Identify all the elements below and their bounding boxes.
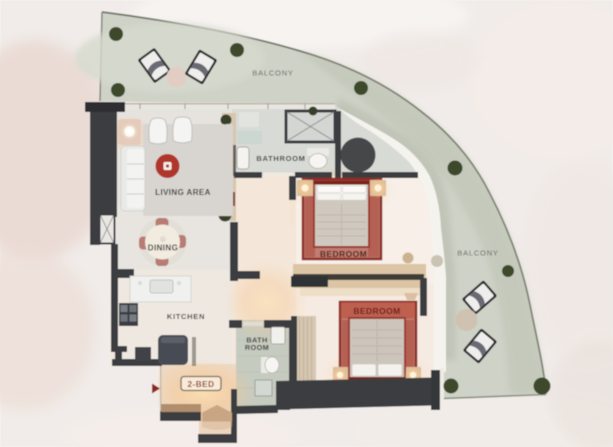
svg-text:2-BED: 2-BED bbox=[187, 380, 214, 389]
svg-text:BEDROOM: BEDROOM bbox=[320, 249, 367, 259]
svg-text:LIVING AREA: LIVING AREA bbox=[155, 188, 211, 197]
svg-text:DINING: DINING bbox=[148, 244, 178, 253]
svg-text:BALCONY: BALCONY bbox=[457, 249, 498, 258]
svg-text:BEDROOM: BEDROOM bbox=[353, 306, 400, 316]
svg-text:ⓘ: ⓘ bbox=[160, 236, 165, 243]
svg-text:BATHROOM: BATHROOM bbox=[256, 154, 305, 163]
svg-text:BALCONY: BALCONY bbox=[252, 69, 293, 78]
svg-text:ROOM: ROOM bbox=[245, 343, 269, 352]
svg-text:KITCHEN: KITCHEN bbox=[167, 312, 205, 321]
